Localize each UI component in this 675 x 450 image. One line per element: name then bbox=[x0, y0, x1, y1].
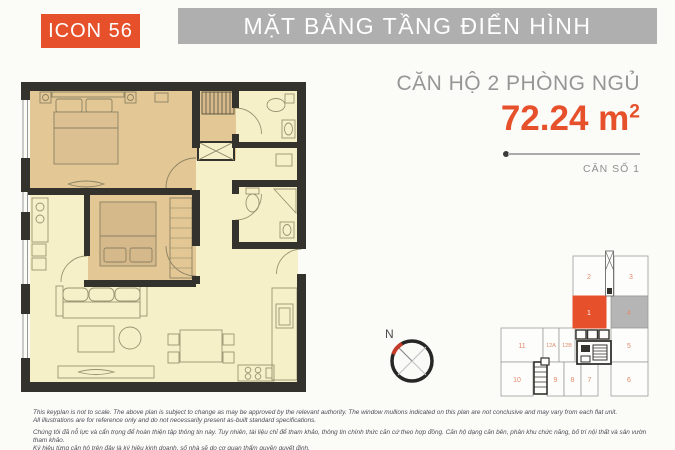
bed-mattress bbox=[100, 202, 156, 266]
unit-info-panel: CĂN HỘ 2 PHÒNG NGỦ 72.24 m2 CĂN SỐ 1 bbox=[396, 72, 640, 175]
unit-area-value: 72.24 m bbox=[501, 99, 629, 138]
project-logo: ICON 56 bbox=[41, 14, 140, 48]
floor-plan bbox=[18, 76, 314, 407]
keyplan-label-7: 7 bbox=[588, 377, 592, 384]
unit-number-label: CĂN SỐ 1 bbox=[396, 163, 640, 175]
keyplan-label-12b: 12B bbox=[562, 343, 572, 349]
keyplan-label-4: 4 bbox=[627, 310, 631, 317]
disclaimer-vi-line1: Chúng tôi đã nỗ lực và cẩn trọng để hoàn… bbox=[33, 429, 661, 445]
unit-type-title: CĂN HỘ 2 PHÒNG NGỦ bbox=[396, 72, 640, 96]
keyplan: 2 3 1 4 5 6 11 12A 12B 10 9 8 7 bbox=[497, 248, 667, 405]
service-shaft bbox=[198, 142, 234, 160]
compass-rose: N bbox=[378, 324, 442, 388]
disclaimer-en-line1: This keyplan is not to scale. The above … bbox=[33, 409, 661, 417]
keyplan-label-1: 1 bbox=[587, 310, 591, 317]
disclaimer-vi-line2: Ký hiệu từng căn hộ trên đây là ký hiệu … bbox=[33, 445, 661, 450]
floor-plan-drawing bbox=[18, 76, 314, 402]
keyplan-drawing: 2 3 1 4 5 6 11 12A 12B 10 9 8 7 bbox=[497, 248, 667, 400]
project-logo-text: ICON 56 bbox=[48, 20, 133, 43]
keyplan-label-11: 11 bbox=[518, 343, 525, 350]
unit-area-sup: 2 bbox=[629, 101, 640, 122]
unit-area: 72.24 m2 bbox=[396, 101, 640, 136]
keyplan-label-12a: 12A bbox=[546, 343, 556, 349]
keyplan-label-3: 3 bbox=[629, 274, 633, 281]
keyplan-label-5: 5 bbox=[627, 343, 631, 350]
compass: N bbox=[378, 324, 442, 393]
keyplan-stairs bbox=[534, 358, 549, 394]
disclaimer: This keyplan is not to scale. The above … bbox=[33, 409, 661, 450]
bed-mattress bbox=[54, 112, 118, 164]
keyplan-label-8: 8 bbox=[571, 377, 575, 384]
keyplan-label-9: 9 bbox=[554, 377, 558, 384]
page-title-bar: MẶT BẰNG TẦNG ĐIỂN HÌNH bbox=[178, 8, 657, 44]
keyplan-label-6: 6 bbox=[627, 377, 631, 384]
keyplan-core bbox=[576, 330, 611, 364]
keyplan-label-2: 2 bbox=[587, 274, 591, 281]
disclaimer-en-line2: All illustrations are for reference only… bbox=[33, 417, 661, 425]
divider-line bbox=[396, 151, 640, 157]
page-title: MẶT BẰNG TẦNG ĐIỂN HÌNH bbox=[243, 13, 591, 40]
compass-north-label: N bbox=[385, 327, 394, 341]
keyplan-label-10: 10 bbox=[513, 377, 521, 384]
brochure-page: ICON 56 MẶT BẰNG TẦNG ĐIỂN HÌNH bbox=[0, 0, 675, 450]
keyplan-shaft bbox=[606, 251, 614, 296]
entry-wardrobe bbox=[202, 92, 234, 114]
